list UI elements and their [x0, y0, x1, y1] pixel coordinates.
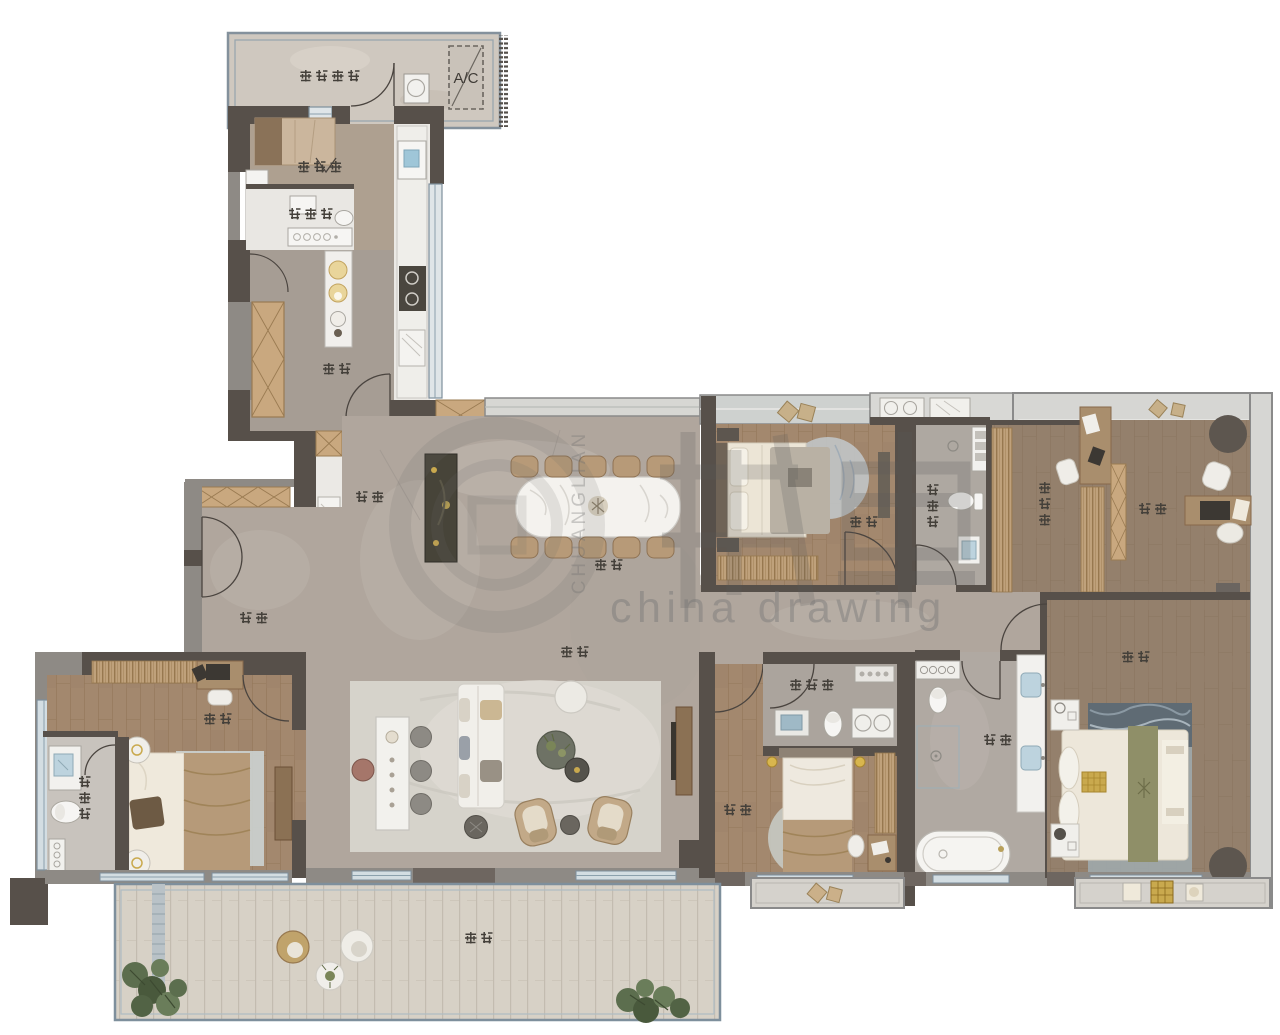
svg-text:A/C: A/C — [453, 70, 478, 87]
svg-text:CHUANGLIAN: CHUANGLIAN — [569, 430, 590, 595]
svg-text:china drawing: china drawing — [610, 584, 947, 632]
